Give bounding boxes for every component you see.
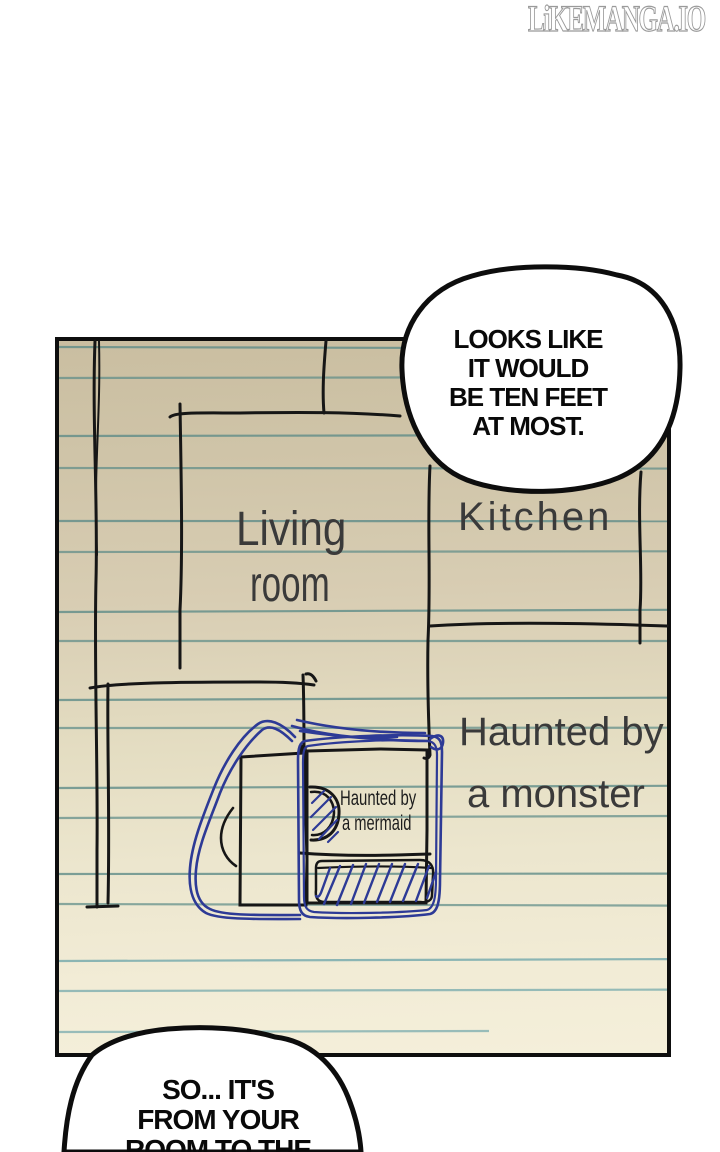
svg-text:room: room (250, 557, 330, 613)
svg-text:a mermaid: a mermaid (342, 811, 411, 834)
svg-text:Living: Living (236, 501, 346, 555)
svg-text:Haunted by: Haunted by (459, 710, 664, 754)
svg-text:Kitchen: Kitchen (458, 495, 612, 539)
svg-text:Haunted by: Haunted by (340, 787, 417, 810)
svg-text:LiKEMANGA.IO: LiKEMANGA.IO (528, 0, 705, 40)
svg-text:a monster: a monster (467, 772, 645, 816)
